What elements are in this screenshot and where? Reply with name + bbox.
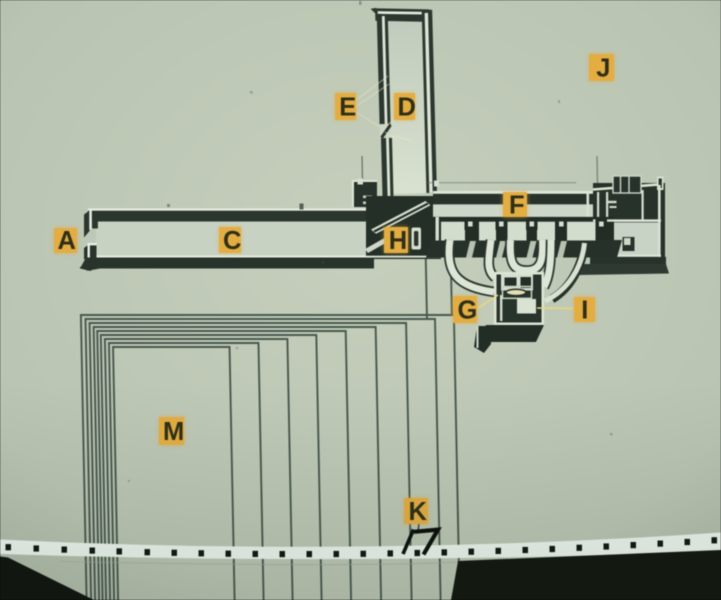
svg-text:H: H [389, 227, 407, 255]
svg-text:I: I [581, 297, 588, 325]
svg-text:A: A [58, 227, 76, 255]
svg-text:G: G [458, 297, 478, 325]
svg-text:E: E [339, 94, 356, 122]
svg-text:F: F [509, 192, 525, 220]
svg-text:C: C [223, 227, 241, 255]
svg-text:D: D [398, 94, 416, 122]
svg-text:J: J [596, 55, 610, 83]
